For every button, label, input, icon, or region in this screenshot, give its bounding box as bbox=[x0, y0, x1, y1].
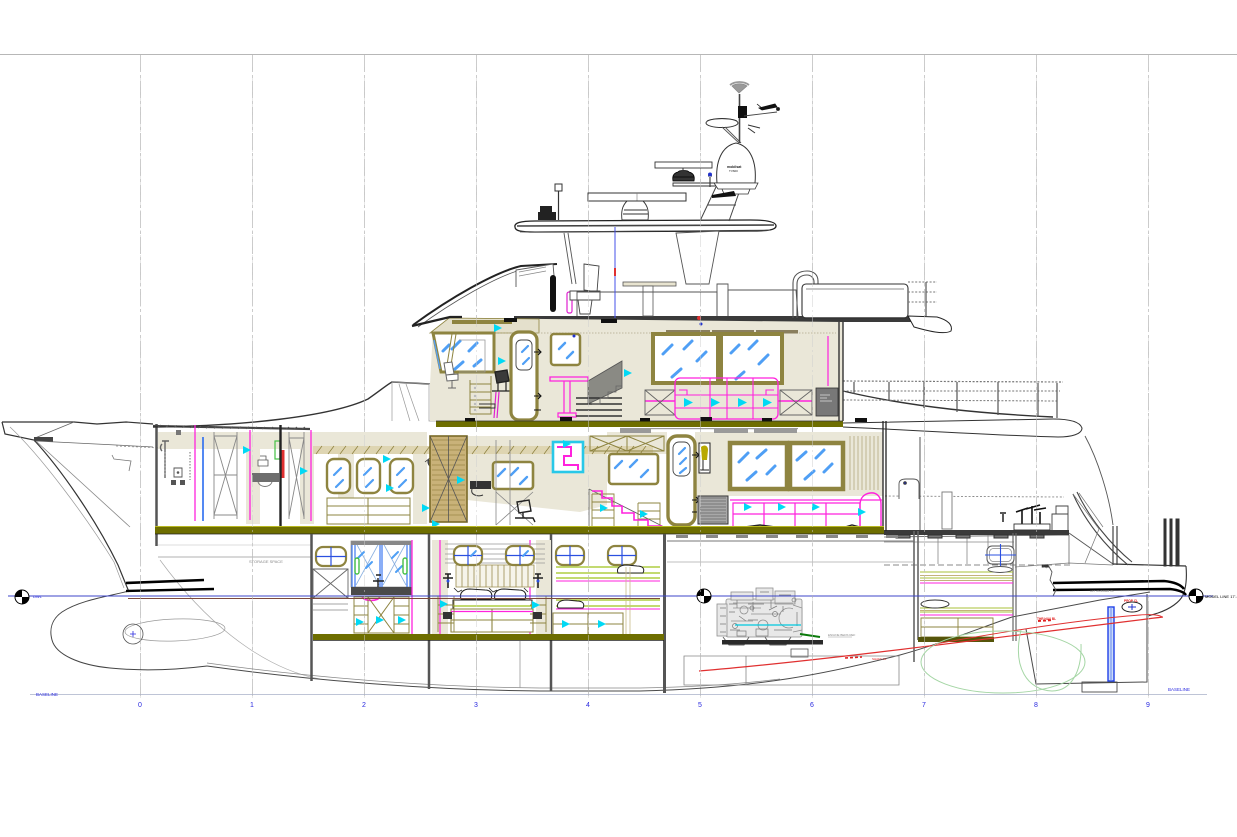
svg-text:DWL: DWL bbox=[33, 594, 43, 599]
svg-text:5: 5 bbox=[698, 702, 702, 709]
svg-text:AFT RUDDER CL: AFT RUDDER CL bbox=[1090, 589, 1114, 593]
svg-text:9: 9 bbox=[1146, 702, 1150, 709]
svg-text:STORAGE SPACE: STORAGE SPACE bbox=[249, 559, 283, 564]
svg-text:4: 4 bbox=[586, 702, 590, 709]
svg-text:BASELINE: BASELINE bbox=[1168, 687, 1190, 692]
svg-text:7: 7 bbox=[922, 702, 926, 709]
svg-text:DWL: DWL bbox=[1042, 564, 1049, 568]
svg-text:1: 1 bbox=[250, 702, 254, 709]
svg-text:ENGINE BEDS REF: ENGINE BEDS REF bbox=[828, 633, 856, 637]
svg-text:BASELINE: BASELINE bbox=[36, 692, 58, 697]
svg-text:PROP CL: PROP CL bbox=[1124, 599, 1138, 603]
svg-text:0: 0 bbox=[138, 702, 142, 709]
svg-text:2: 2 bbox=[362, 702, 366, 709]
svg-text:TV600: TV600 bbox=[729, 169, 738, 173]
svg-text:8: 8 bbox=[1034, 702, 1038, 709]
svg-text:MODEL LINE 17'-0": MODEL LINE 17'-0" bbox=[1205, 594, 1237, 599]
svg-text:SHAFT CL: SHAFT CL bbox=[872, 657, 887, 661]
svg-text:6: 6 bbox=[810, 702, 814, 709]
svg-text:3: 3 bbox=[474, 702, 478, 709]
